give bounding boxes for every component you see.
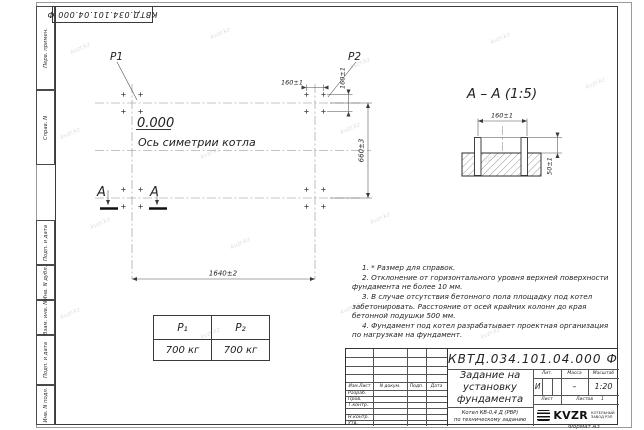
section-dim-text-160: 160±1: [491, 112, 513, 120]
boiler-axis-label: Ось симетрии котла: [138, 136, 256, 149]
rev-header-podp: Подп.: [407, 383, 426, 390]
drawing-title: Задание на установку фундамента: [447, 369, 533, 407]
manufacturer-logo: KVZR КОТЕЛЬНЫЙ ЗАВОД РЭП: [533, 404, 619, 426]
rev-header-izm-list: Изм.Лист: [346, 383, 373, 390]
sheet-label: Лист: [533, 395, 561, 404]
kvzr-coil-icon: [537, 410, 550, 421]
role-prov: Пров.: [348, 397, 362, 402]
kvzr-logo-caption: КОТЕЛЬНЫЙ ЗАВОД РЭП: [591, 411, 615, 420]
section-view: А – А (1:5) 160±1 50±1: [462, 86, 562, 176]
sheets-value: 1: [601, 397, 604, 402]
note-1: 1. * Размер для справок.: [352, 263, 612, 273]
rev-header-n-dokum: N докум.: [373, 383, 407, 390]
scale-label: Масштаб: [588, 369, 619, 378]
drawing-title-line2: установку: [463, 382, 517, 394]
load-table: P₁ P₂ 700 кг 700 кг: [153, 315, 270, 361]
concrete-foundation-hatch: [462, 153, 541, 176]
lit-value: И: [533, 378, 542, 395]
drawing-title-line3: фундамента: [457, 394, 523, 406]
plan-view: P1 P2 0.000 Ось симетрии котла А А 1640±…: [95, 51, 372, 279]
drawing-subtitle-line2: по техническому заданию: [454, 417, 526, 424]
drawing-title-line1: Задание на: [460, 370, 521, 382]
load-table-value-p2: 700 кг: [212, 340, 269, 360]
lit-label: Лит.: [533, 369, 561, 378]
mass-value: –: [561, 378, 588, 395]
elevation-mark: 0.000: [137, 116, 174, 131]
scale-value: 1:20: [588, 378, 619, 395]
sheets-label: Листов: [576, 397, 593, 402]
sheets-cell: Листов 1: [561, 395, 619, 404]
title-block-doc-number: КВТД.034.101.04.000 Ф: [447, 349, 619, 369]
p1-leader-line: [117, 62, 137, 100]
drawing-subtitle-line1: Котел КВ-0,4 Д (РВР): [462, 410, 519, 417]
anchor-bolt-right: [521, 138, 528, 176]
dim-text-160v: 160±1: [339, 67, 347, 89]
role-t-kontr: Т.контр.: [348, 403, 368, 408]
section-title: А – А (1:5): [466, 86, 537, 102]
dim-text-160h: 160±1: [281, 79, 303, 87]
load-table-header-p2: P₂: [212, 316, 269, 340]
technical-notes: 1. * Размер для справок. 2. Отклонение о…: [352, 263, 612, 340]
drawing-subtitle: Котел КВ-0,4 Д (РВР) по техническому зад…: [447, 407, 533, 426]
plan-centerlines: [95, 84, 371, 279]
role-n-kontr: Н.контр.: [348, 415, 369, 420]
section-dim-text-50: 50±1: [546, 157, 554, 175]
note-4: 4. Фундамент под котел разрабатывает про…: [352, 321, 612, 340]
p1-label: P1: [110, 51, 123, 63]
rev-header-data: Дата: [426, 383, 447, 390]
role-razrab: Разраб.: [348, 391, 366, 396]
section-mark-right-letter: А: [149, 185, 159, 200]
p2-label: P2: [348, 51, 361, 63]
load-table-header-p1: P₁: [154, 316, 212, 340]
note-3: 3. В случае отсутствия бетонного пола пл…: [352, 292, 612, 321]
load-table-value-p1: 700 кг: [154, 340, 212, 360]
kvzr-caption-line2: ЗАВОД РЭП: [591, 415, 615, 419]
drawing-sheet: kvzr.kz kvzr.kz kvzr.kz kvzr.kz kvzr.kz …: [0, 0, 644, 430]
anchor-bolt-left: [475, 138, 482, 176]
mass-label: Масса: [561, 369, 588, 378]
section-mark-left-letter: А: [96, 185, 106, 200]
dim-text-660: 660±3: [358, 139, 366, 163]
title-block: Изм.Лист N докум. Подп. Дата Разраб. Про…: [345, 348, 618, 425]
kvzr-logo-text: KVZR: [553, 409, 588, 422]
note-2: 2. Отклонение от горизонтального уровня …: [352, 273, 612, 292]
role-utv: Утв.: [348, 421, 358, 426]
dim-text-1640: 1640±2: [209, 270, 238, 278]
format-label: Формат А3: [548, 424, 620, 430]
